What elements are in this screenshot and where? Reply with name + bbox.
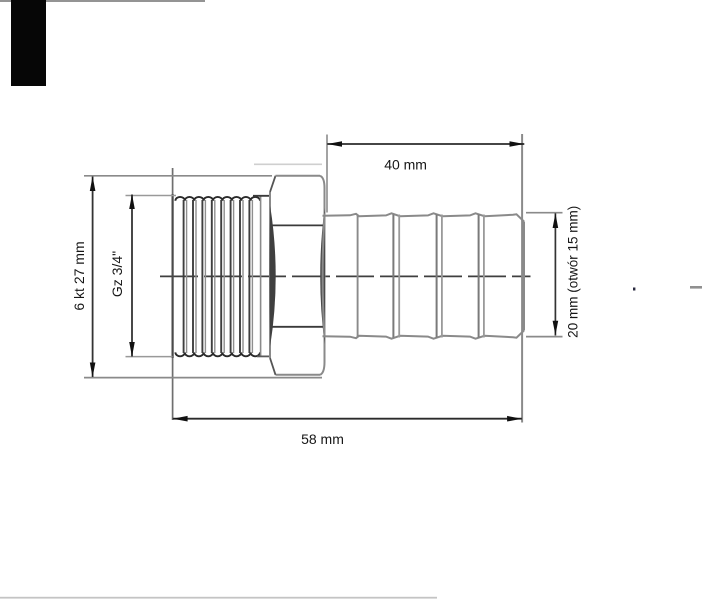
svg-text:40 mm: 40 mm — [384, 156, 427, 172]
svg-text:Gz 3/4": Gz 3/4" — [109, 251, 125, 297]
svg-text:20 mm (otwór 15 mm): 20 mm (otwór 15 mm) — [566, 206, 581, 338]
svg-text:6 kt 27 mm: 6 kt 27 mm — [71, 241, 87, 310]
svg-text:58 mm: 58 mm — [301, 431, 344, 447]
